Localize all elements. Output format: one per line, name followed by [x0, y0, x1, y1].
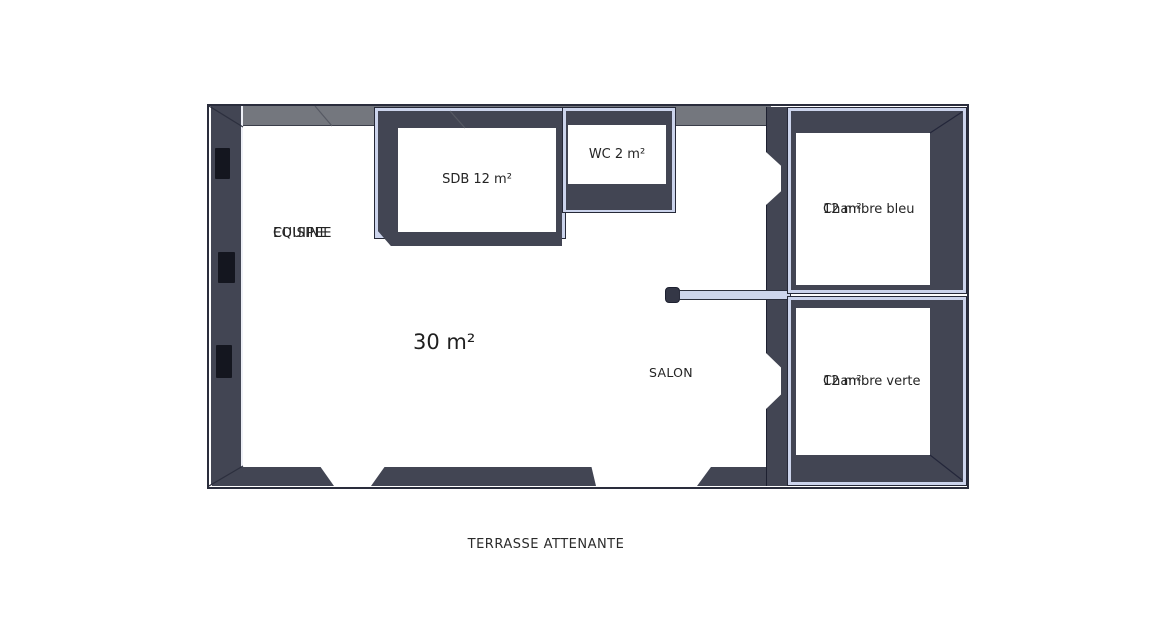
salon-label: SALON: [649, 365, 693, 380]
terrace-label: TERRASSE ATTENANTE: [416, 537, 676, 552]
kitchen-label-line2: EQUIPEE: [273, 225, 332, 243]
bedroom-green-size: 12 m²: [796, 371, 862, 392]
bedroom-blue-floor: Chambre bleu 12 m²: [796, 133, 930, 285]
window-icon: [216, 345, 232, 378]
bathroom-label: SDB 12 m²: [442, 171, 512, 189]
bedroom-green-floor: Chambre verte 12 m²: [796, 308, 930, 455]
wc-label: WC 2 m²: [589, 146, 645, 164]
bathroom-floor: SDB 12 m²: [398, 128, 556, 232]
bedroom-blue-size: 12 m²: [796, 199, 862, 220]
apartment-outline: SDB 12 m² WC 2 m² Chambre bleu 12 m² Cha…: [207, 104, 969, 489]
door-hinge-icon: [665, 287, 680, 303]
window-icon: [218, 252, 235, 283]
open-door-leaf: [679, 290, 791, 300]
bottom-wall-segment: [371, 467, 596, 486]
living-area-size: 30 m²: [413, 330, 475, 354]
wc-floor: WC 2 m²: [568, 125, 666, 184]
bottom-wall-segment: [212, 467, 334, 486]
window-icon: [215, 148, 230, 179]
floor-plan-canvas: SDB 12 m² WC 2 m² Chambre bleu 12 m² Cha…: [0, 0, 1152, 634]
